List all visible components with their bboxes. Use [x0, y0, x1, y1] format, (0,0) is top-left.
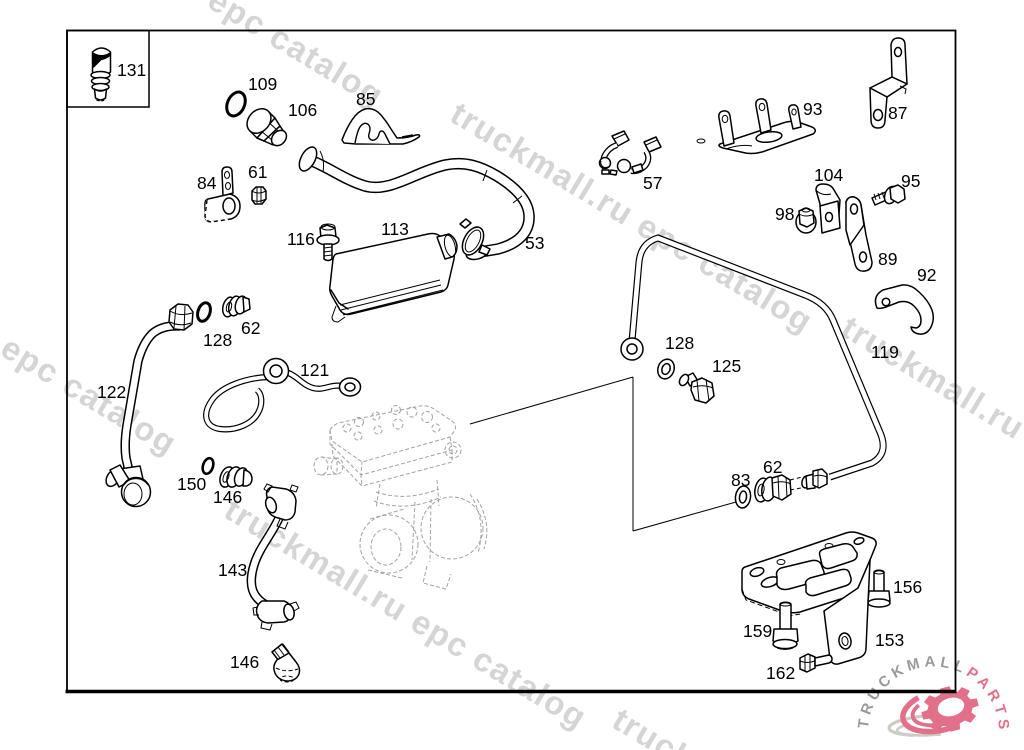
- svg-text:150: 150: [177, 474, 206, 494]
- svg-text:146: 146: [230, 652, 259, 672]
- svg-text:146: 146: [213, 487, 242, 507]
- svg-text:121: 121: [300, 360, 329, 380]
- svg-text:98: 98: [775, 204, 794, 224]
- svg-text:125: 125: [712, 356, 741, 376]
- svg-text:162: 162: [766, 663, 795, 683]
- svg-text:53: 53: [525, 233, 544, 253]
- svg-text:128: 128: [203, 330, 232, 350]
- svg-text:116: 116: [287, 229, 315, 249]
- svg-text:104: 104: [814, 165, 843, 185]
- svg-text:83: 83: [731, 470, 750, 490]
- svg-text:62: 62: [241, 318, 260, 338]
- svg-text:156: 156: [893, 577, 922, 597]
- svg-text:128: 128: [665, 333, 694, 353]
- svg-text:159: 159: [743, 621, 772, 641]
- svg-text:106: 106: [288, 100, 317, 120]
- svg-text:84: 84: [197, 173, 217, 193]
- svg-text:89: 89: [878, 249, 897, 269]
- svg-text:85: 85: [356, 89, 375, 109]
- svg-text:153: 153: [875, 630, 904, 650]
- svg-text:62: 62: [763, 457, 782, 477]
- svg-text:95: 95: [901, 171, 920, 191]
- svg-text:57: 57: [643, 173, 662, 193]
- svg-text:109: 109: [248, 74, 277, 94]
- svg-text:87: 87: [888, 103, 907, 123]
- svg-text:119: 119: [871, 342, 899, 362]
- svg-text:93: 93: [803, 99, 822, 119]
- svg-text:122: 122: [97, 382, 126, 402]
- svg-text:92: 92: [917, 265, 936, 285]
- svg-text:113: 113: [381, 219, 409, 239]
- svg-text:131: 131: [117, 60, 146, 80]
- svg-text:61: 61: [248, 162, 267, 182]
- svg-text:143: 143: [218, 560, 247, 580]
